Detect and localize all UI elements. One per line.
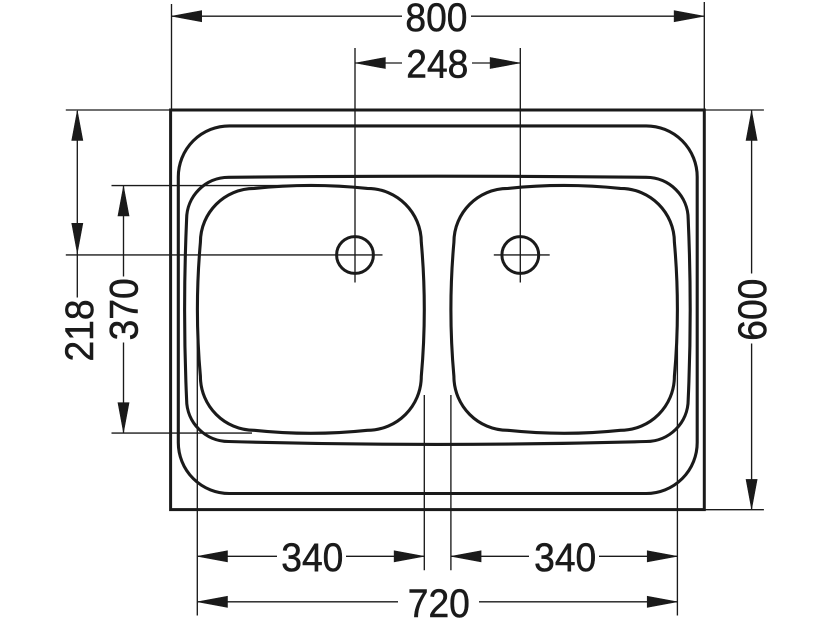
svg-text:800: 800: [405, 0, 467, 40]
svg-text:218: 218: [58, 299, 103, 361]
svg-text:340: 340: [281, 536, 343, 581]
svg-text:370: 370: [102, 278, 147, 340]
svg-text:340: 340: [534, 536, 596, 581]
svg-text:600: 600: [731, 279, 776, 341]
svg-text:248: 248: [406, 42, 468, 87]
svg-text:720: 720: [408, 582, 470, 620]
